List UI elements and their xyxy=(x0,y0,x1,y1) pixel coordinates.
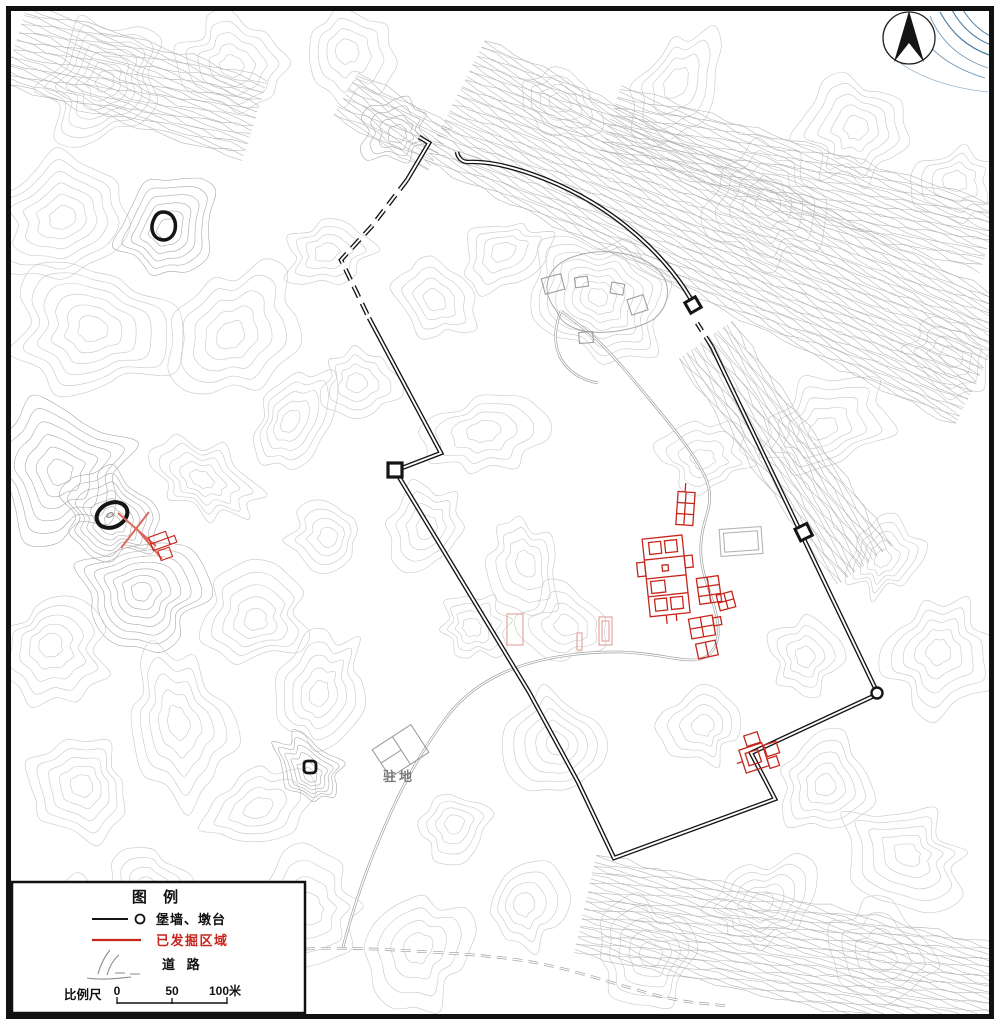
gray-structures xyxy=(372,252,763,778)
scale-tick-100: 100米 xyxy=(209,983,242,998)
excavated-areas xyxy=(118,483,783,778)
fort-wall-dashed xyxy=(341,180,712,347)
legend-title: 图 例 xyxy=(132,888,184,906)
map-canvas: 驻地 图 例 堡墙、墩台 已发掘区域 道 路 xyxy=(0,0,1000,1027)
platform-rings xyxy=(92,212,316,773)
wall-bastions xyxy=(388,297,883,699)
main-excavated-compound xyxy=(634,534,699,626)
site-map-figure: 驻地 图 例 堡墙、墩台 已发掘区域 道 路 xyxy=(0,0,1000,1027)
legend-item-wall-label: 堡墙、墩台 xyxy=(156,912,226,927)
north-excavated-strip xyxy=(676,483,696,526)
faint-excavation-outlines xyxy=(507,614,612,650)
legend-item-road-label: 道 路 xyxy=(162,957,204,972)
scale-tick-50: 50 xyxy=(165,984,179,998)
fort-wall xyxy=(369,137,878,858)
scale-tick-0: 0 xyxy=(114,984,121,998)
north-arrow xyxy=(883,11,935,64)
camp-label: 驻地 xyxy=(383,769,415,784)
fort-wall-dashed xyxy=(341,180,712,347)
fort-wall xyxy=(369,137,878,858)
legend-box: 图 例 堡墙、墩台 已发掘区域 道 路 比例尺 0 50 100 xyxy=(12,882,305,1013)
corner-platform-circle xyxy=(872,688,883,699)
scale-bar-label: 比例尺 xyxy=(64,987,102,1002)
contour-lines-layer xyxy=(0,7,1000,1027)
road-layer xyxy=(343,311,718,947)
map-border xyxy=(9,9,992,1017)
legend-item-excavated-label: 已发掘区域 xyxy=(156,933,229,948)
road-layer xyxy=(343,311,718,947)
